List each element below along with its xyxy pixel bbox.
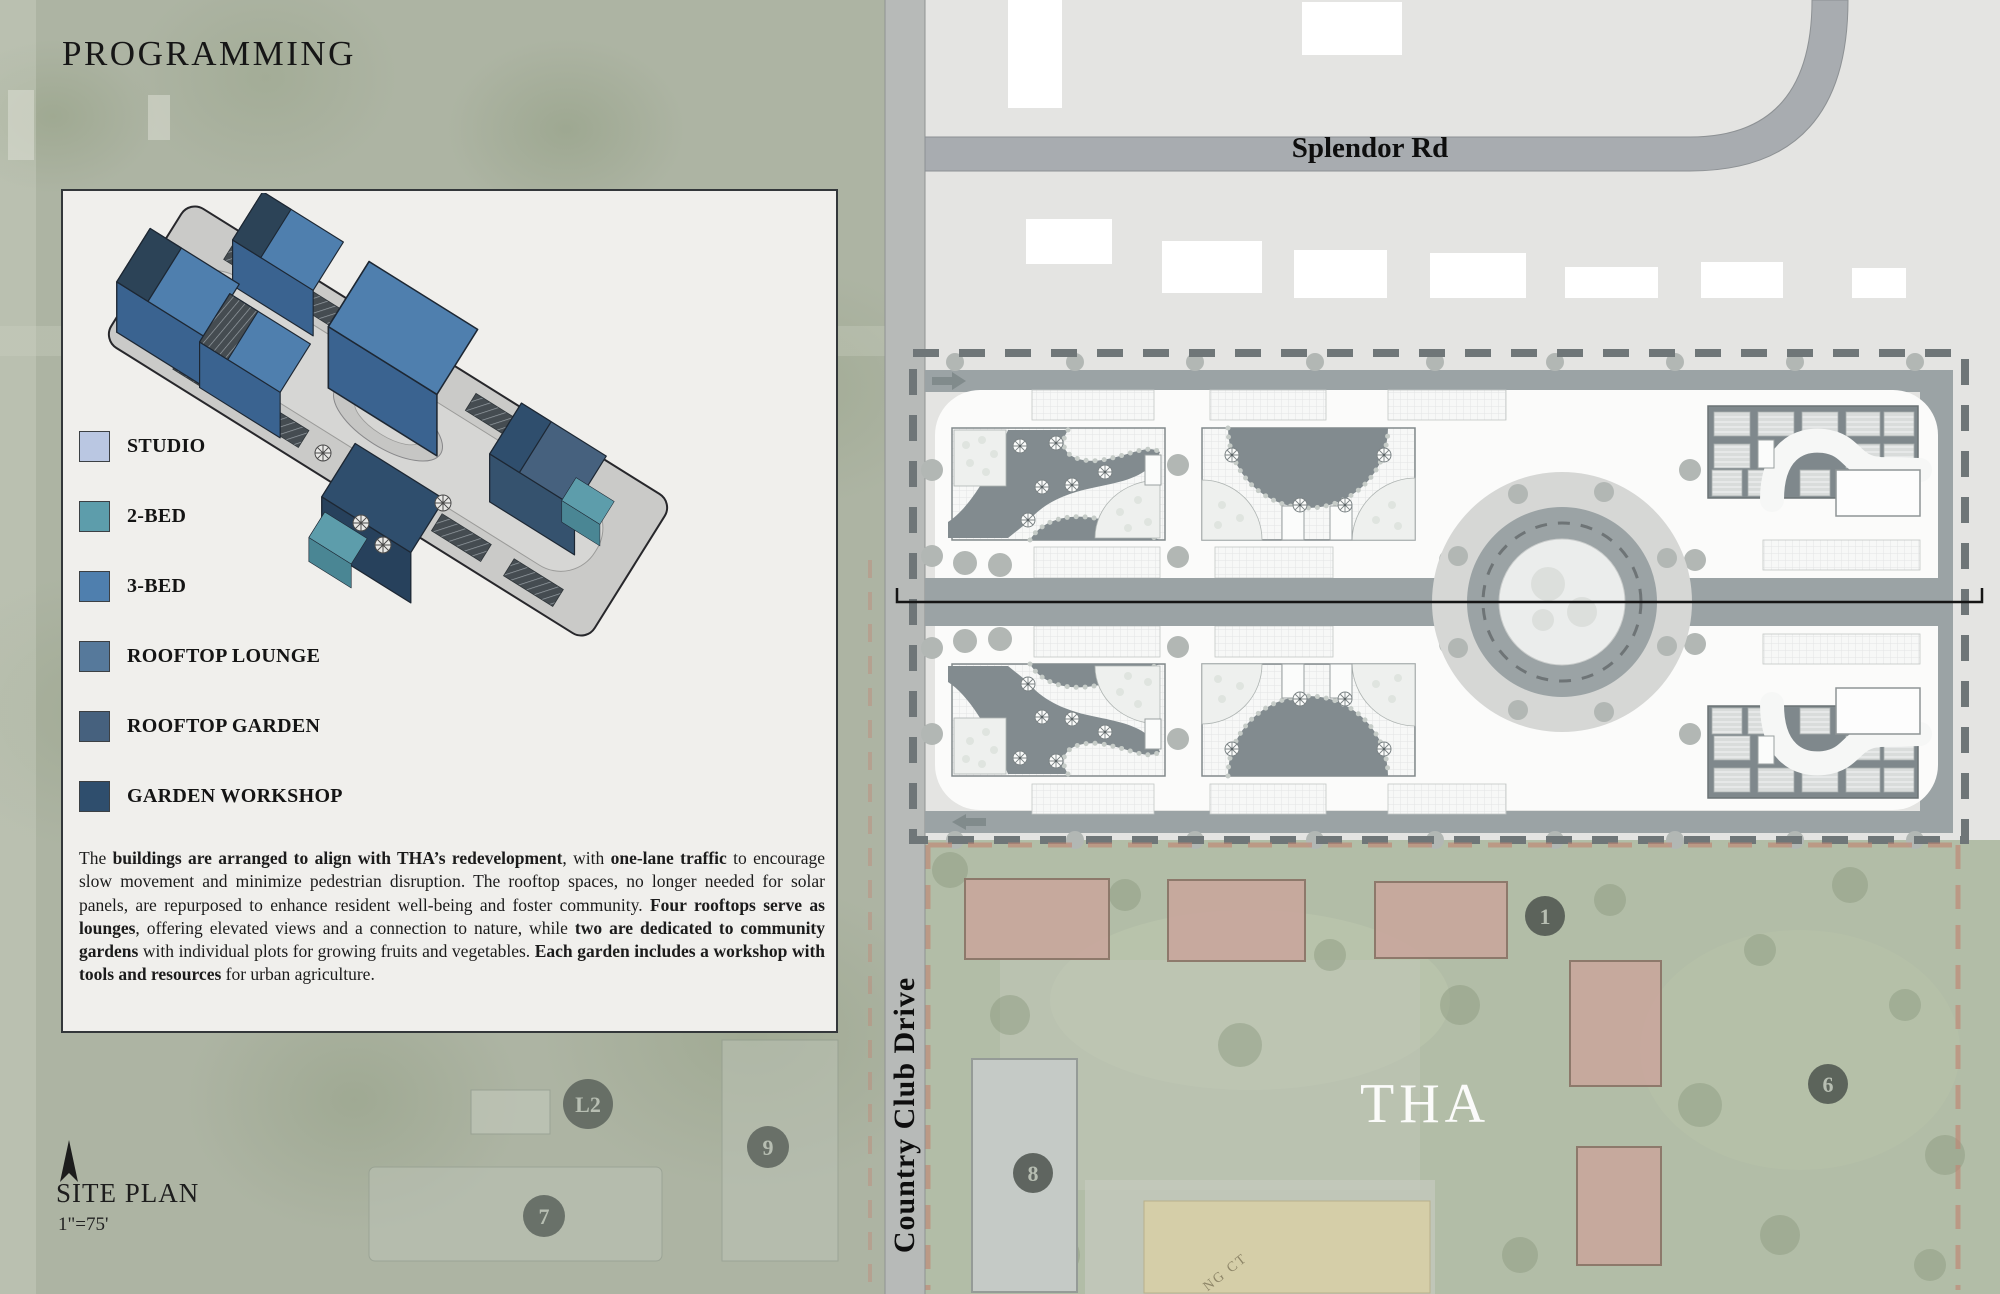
tha-area-label: THA (1360, 1072, 1490, 1136)
badge-label: 1 (1540, 904, 1551, 929)
rooftop-lounge-plan-a (948, 428, 1165, 540)
building-number-badge: 6 (1808, 1064, 1848, 1104)
country-club-drive-label: Country Club Drive (883, 915, 927, 1294)
planting-bed (954, 430, 1006, 486)
building-number-badge: 7 (523, 1195, 565, 1237)
badge-label: 6 (1823, 1072, 1834, 1097)
rooftop-lounge-plan-b (1202, 428, 1415, 540)
splendor-rd-label: Splendor Rd (1255, 132, 1485, 165)
court-area (1144, 1201, 1430, 1293)
badge-label: 8 (1028, 1161, 1039, 1186)
garden-workshop-plan (1836, 470, 1920, 516)
building-number-badge: 9 (747, 1126, 789, 1168)
presentation-board: PROGRAMMING (0, 0, 2000, 1294)
building-number-badge: 8 (1013, 1153, 1053, 1193)
building-number-badge: L2 (563, 1079, 613, 1129)
site-plan-map: NG CT 1 8 6 L2 (0, 0, 2000, 1294)
badge-label: 7 (539, 1204, 550, 1229)
building-number-badge: 1 (1525, 896, 1565, 936)
badge-label: L2 (575, 1092, 601, 1117)
badge-label: 9 (763, 1135, 774, 1160)
